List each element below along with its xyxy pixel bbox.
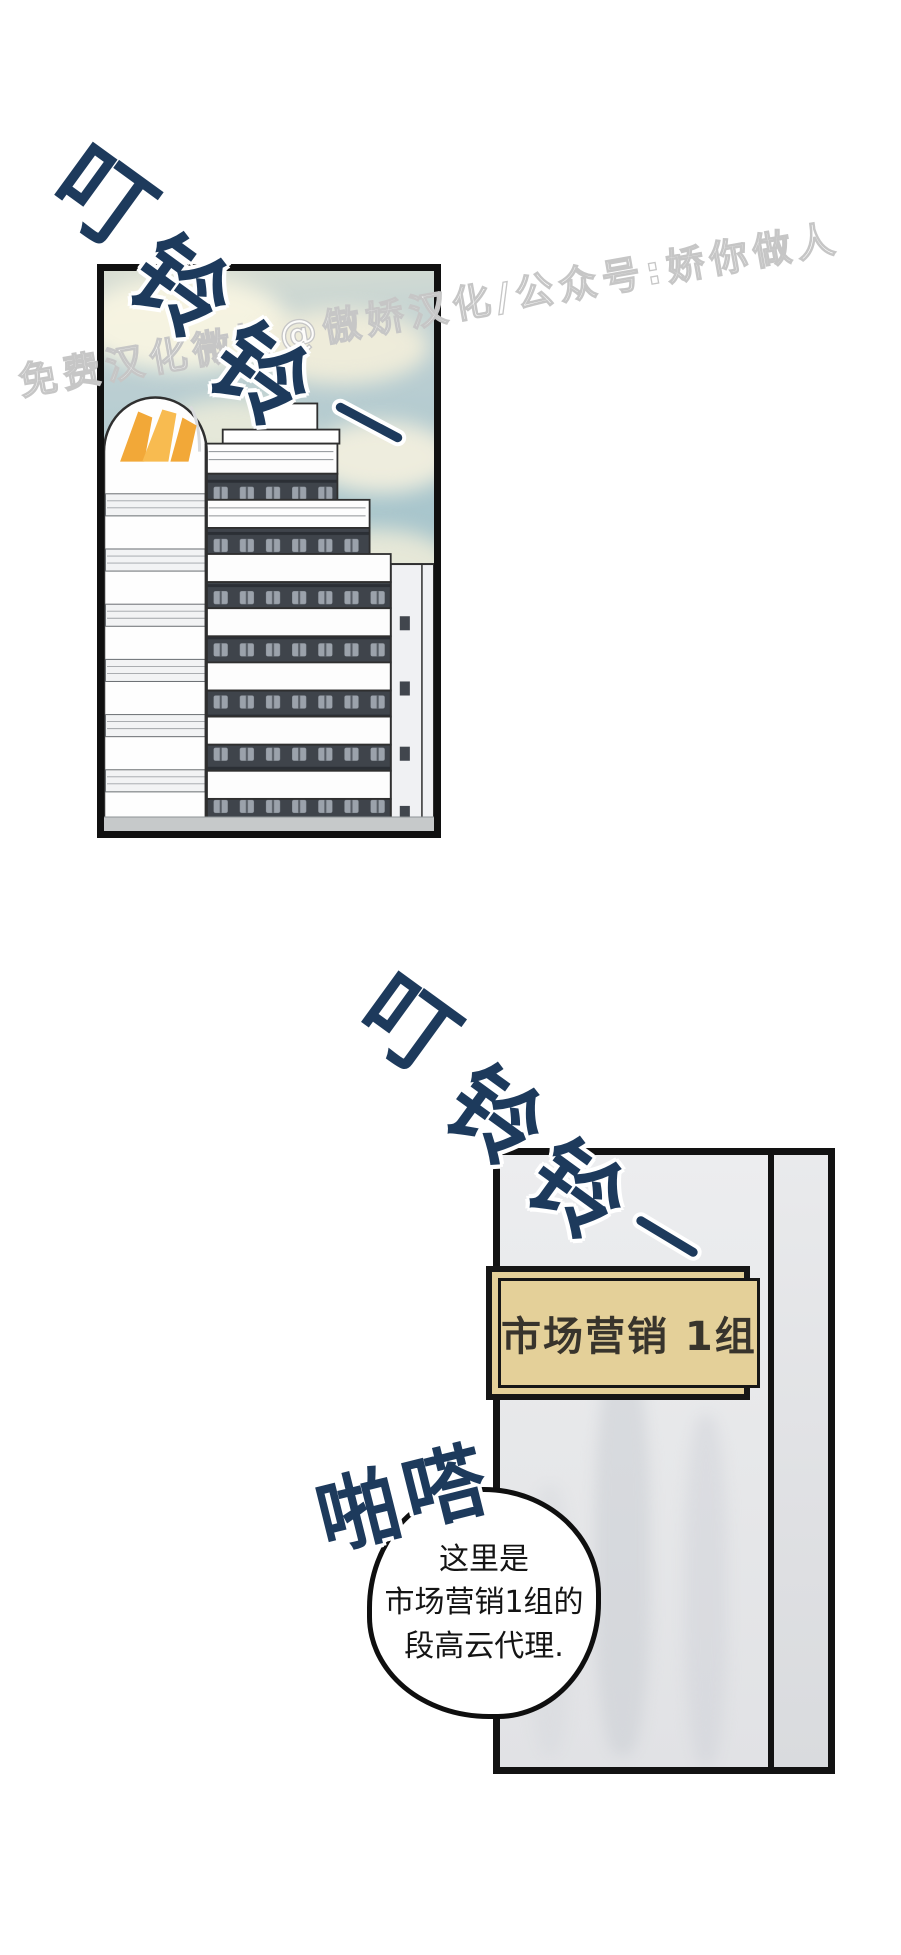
door-sign: 市场营销 1组 bbox=[486, 1266, 750, 1400]
sfx-char: 叮 bbox=[36, 133, 169, 266]
sfx-char: 啪 bbox=[309, 1463, 408, 1562]
building-cylinder-tower bbox=[104, 397, 207, 831]
comic-page: 免费汉化微博@傲娇汉化/公众号:娇你做人 叮 铃 铃 叮 铃 铃 市场营销 1组… bbox=[0, 0, 901, 1955]
door-frame-strip bbox=[774, 1155, 828, 1767]
sfx-char: 叮 bbox=[344, 962, 473, 1091]
ground-strip bbox=[104, 817, 434, 831]
door-reflection bbox=[685, 1415, 727, 1765]
door-reflection bbox=[595, 1355, 650, 1755]
building-terraces bbox=[205, 403, 391, 820]
door-sign-text: 市场营销 1组 bbox=[501, 1304, 757, 1362]
speech-line: 这里是 bbox=[439, 1538, 529, 1582]
speech-line: 市场营销1组的 bbox=[384, 1581, 583, 1625]
building-right-tower bbox=[391, 564, 434, 831]
speech-line: 段高云代理. bbox=[404, 1625, 564, 1669]
door-sign-inner-frame: 市场营销 1组 bbox=[498, 1278, 760, 1388]
door-frame-line bbox=[768, 1155, 774, 1767]
